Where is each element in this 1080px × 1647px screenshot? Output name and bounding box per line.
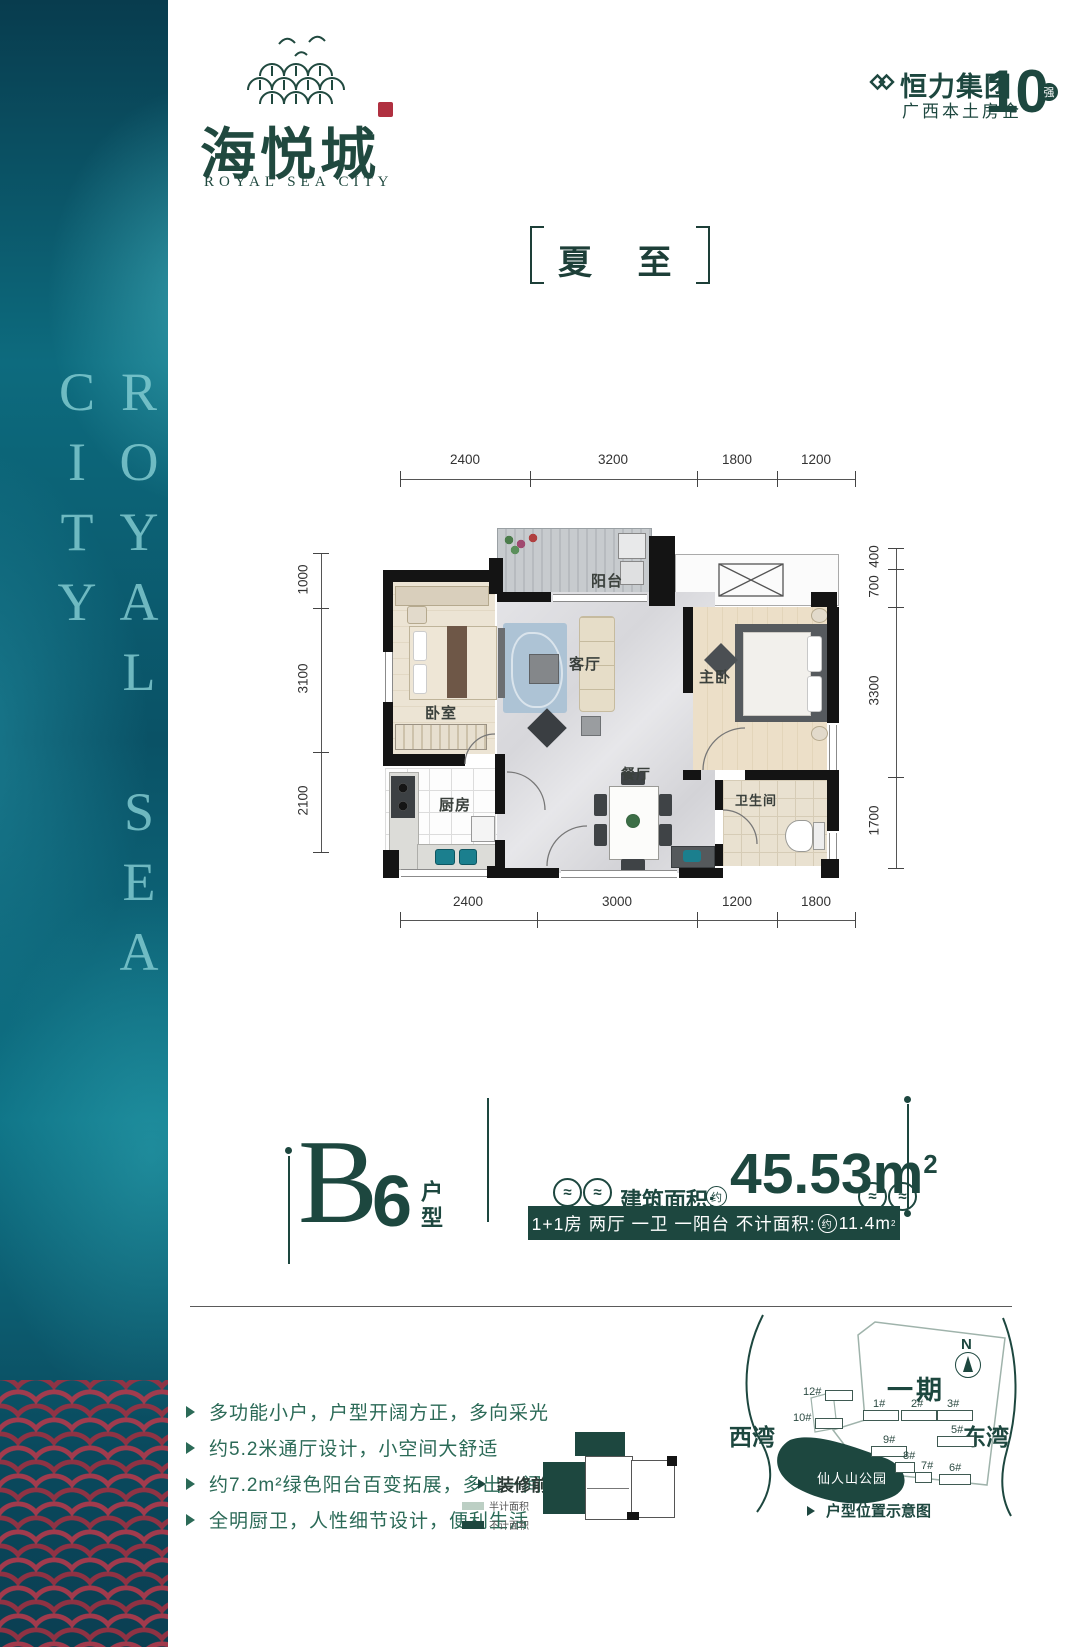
unit-number: 6: [372, 1166, 412, 1238]
side-vertical-title: ROYAL SEA CITY: [46, 362, 170, 1262]
building-icon: [939, 1474, 971, 1485]
dim-top-1: 2400: [433, 452, 497, 467]
band-rooms: 1+1房 两厅 一卫 一阳台: [532, 1211, 730, 1236]
dim-right-2: 700: [867, 555, 882, 619]
bullet-arrow-icon: [186, 1406, 201, 1418]
label-kitchen: 厨房: [439, 794, 471, 815]
band-approx: 约: [818, 1214, 837, 1233]
dim-top-4: 1200: [784, 452, 848, 467]
feature-item: 多功能小户，户型开阔方正，多向采光: [186, 1398, 549, 1425]
dim-left-2: 3100: [296, 647, 311, 711]
dim-bottom-1: 2400: [436, 894, 500, 909]
dim-left-1: 1000: [296, 548, 311, 612]
site-map: 西湾 东湾 一期 仙人山公园 12# 10# 1# 2# 3# 9# 8# 5#…: [715, 1300, 1025, 1525]
compass-icon: [955, 1352, 981, 1378]
legend-excluded-label: 不计面积: [489, 1517, 529, 1532]
building-label: 2#: [911, 1398, 923, 1410]
label-master: 主卧: [699, 666, 731, 687]
unit-band: 1+1房 两厅 一卫 一阳台 不计面积: 约 11.4m2: [528, 1206, 900, 1240]
developer-mark-icon: [868, 69, 896, 95]
bracket-right-icon: [696, 226, 710, 284]
unit-accent-line-right: [907, 1104, 909, 1208]
mini-plan-legend: 半计面积 不计面积: [462, 1498, 529, 1532]
wave-stamp-icon: [553, 1178, 582, 1207]
label-living: 客厅: [569, 653, 601, 674]
unit-divider-line: [487, 1098, 489, 1222]
bullet-arrow-icon: [186, 1478, 201, 1490]
unit-letter: B: [298, 1122, 378, 1242]
building-label: 7#: [921, 1460, 933, 1472]
bullet-arrow-icon: [186, 1442, 201, 1454]
caption-arrow-icon: [807, 1506, 820, 1516]
compass-north-label: N: [961, 1336, 972, 1353]
dim-line-right: [896, 548, 897, 868]
building-icon: [915, 1472, 932, 1483]
band-value: 11.4m: [839, 1213, 891, 1234]
unit-type-suffix: 户型: [414, 1180, 446, 1232]
building-label: 3#: [947, 1398, 959, 1410]
mini-plan-label-text: 装修前: [497, 1471, 548, 1496]
site-map-caption: 户型位置示意图: [807, 1500, 931, 1521]
legend-swatch-half: [462, 1502, 484, 1510]
building-icon: [863, 1410, 899, 1421]
dim-right-4: 1700: [867, 789, 882, 853]
building-icon: [937, 1410, 973, 1421]
park-label: 仙人山公园: [817, 1468, 887, 1487]
accent-dot: [904, 1096, 911, 1103]
mini-plan-drawing: [543, 1432, 675, 1520]
season-title-text: 夏 至: [558, 235, 689, 284]
building-label: 9#: [883, 1434, 895, 1446]
developer-subtitle: 广西本土房企: [902, 97, 1022, 122]
dim-bottom-4: 1800: [784, 894, 848, 909]
unit-accent-line-left: [288, 1156, 290, 1264]
building-label: 12#: [803, 1386, 821, 1398]
building-label: 10#: [793, 1412, 811, 1424]
developer-block: 恒力集团 10 强 广西本土房企: [840, 55, 1070, 125]
brand-name-en: ROYAL SEA CITY: [204, 174, 393, 191]
bracket-left-icon: [530, 226, 544, 284]
accent-dot: [285, 1147, 292, 1154]
building-icon: [815, 1418, 843, 1429]
waves-seagulls-icon: [213, 32, 383, 110]
label-balcony: 阳台: [591, 570, 623, 591]
building-label: 5#: [951, 1424, 963, 1436]
floorplan: 阳台 卧室 客厅 主卧 厨房 餐厅 卫生间: [383, 528, 857, 878]
seal-icon: [378, 102, 393, 117]
west-bay-label: 西湾: [729, 1418, 775, 1452]
dim-line-top: [400, 479, 856, 480]
dim-top-2: 3200: [581, 452, 645, 467]
legend-half-label: 半计面积: [489, 1498, 529, 1513]
accent-dot: [904, 1210, 911, 1217]
building-label: 1#: [873, 1398, 885, 1410]
building-icon: [825, 1390, 853, 1401]
wave-stamp-icon: [583, 1178, 612, 1207]
caption-text: 户型位置示意图: [826, 1500, 931, 1521]
label-bedroom: 卧室: [425, 702, 457, 723]
band-sup: 2: [891, 1219, 896, 1228]
dim-line-left: [321, 553, 322, 852]
legend-swatch-excluded: [462, 1521, 484, 1529]
area-approx: 约: [706, 1186, 727, 1207]
building-label: 6#: [949, 1462, 961, 1474]
building-label: 8#: [903, 1450, 915, 1462]
building-icon: [937, 1436, 975, 1447]
feature-item: 约5.2米通厅设计，小空间大舒适: [186, 1434, 498, 1461]
dim-left-3: 2100: [296, 769, 311, 833]
mini-plan-label: 装修前: [478, 1471, 548, 1496]
label-arrow-icon: [478, 1479, 491, 1489]
building-icon: [871, 1446, 907, 1457]
label-bath: 卫生间: [735, 790, 777, 809]
dim-line-bottom: [400, 920, 856, 921]
season-title: 夏 至: [530, 224, 710, 286]
brand-logo: 海悦城 ROYAL SEA CITY: [198, 32, 398, 192]
dim-bottom-2: 3000: [585, 894, 649, 909]
dim-right-3: 3300: [867, 659, 882, 723]
fish-scale-pattern: [0, 1380, 168, 1647]
building-icon: [895, 1462, 915, 1473]
area-value-sup: 2: [923, 1151, 937, 1179]
band-area-label: 不计面积:: [736, 1211, 816, 1236]
developer-rank-badge: 强: [1040, 83, 1058, 101]
building-icon: [901, 1410, 937, 1421]
dim-top-3: 1800: [705, 452, 769, 467]
label-dining: 餐厅: [621, 764, 651, 784]
feature-text: 多功能小户，户型开阔方正，多向采光: [209, 1398, 549, 1425]
feature-text: 约5.2米通厅设计，小空间大舒适: [209, 1434, 498, 1461]
bullet-arrow-icon: [186, 1514, 201, 1526]
poster-page: ROYAL SEA CITY 海悦城 ROYAL SEA CITY 恒力集团 1…: [0, 0, 1080, 1647]
dim-bottom-3: 1200: [705, 894, 769, 909]
